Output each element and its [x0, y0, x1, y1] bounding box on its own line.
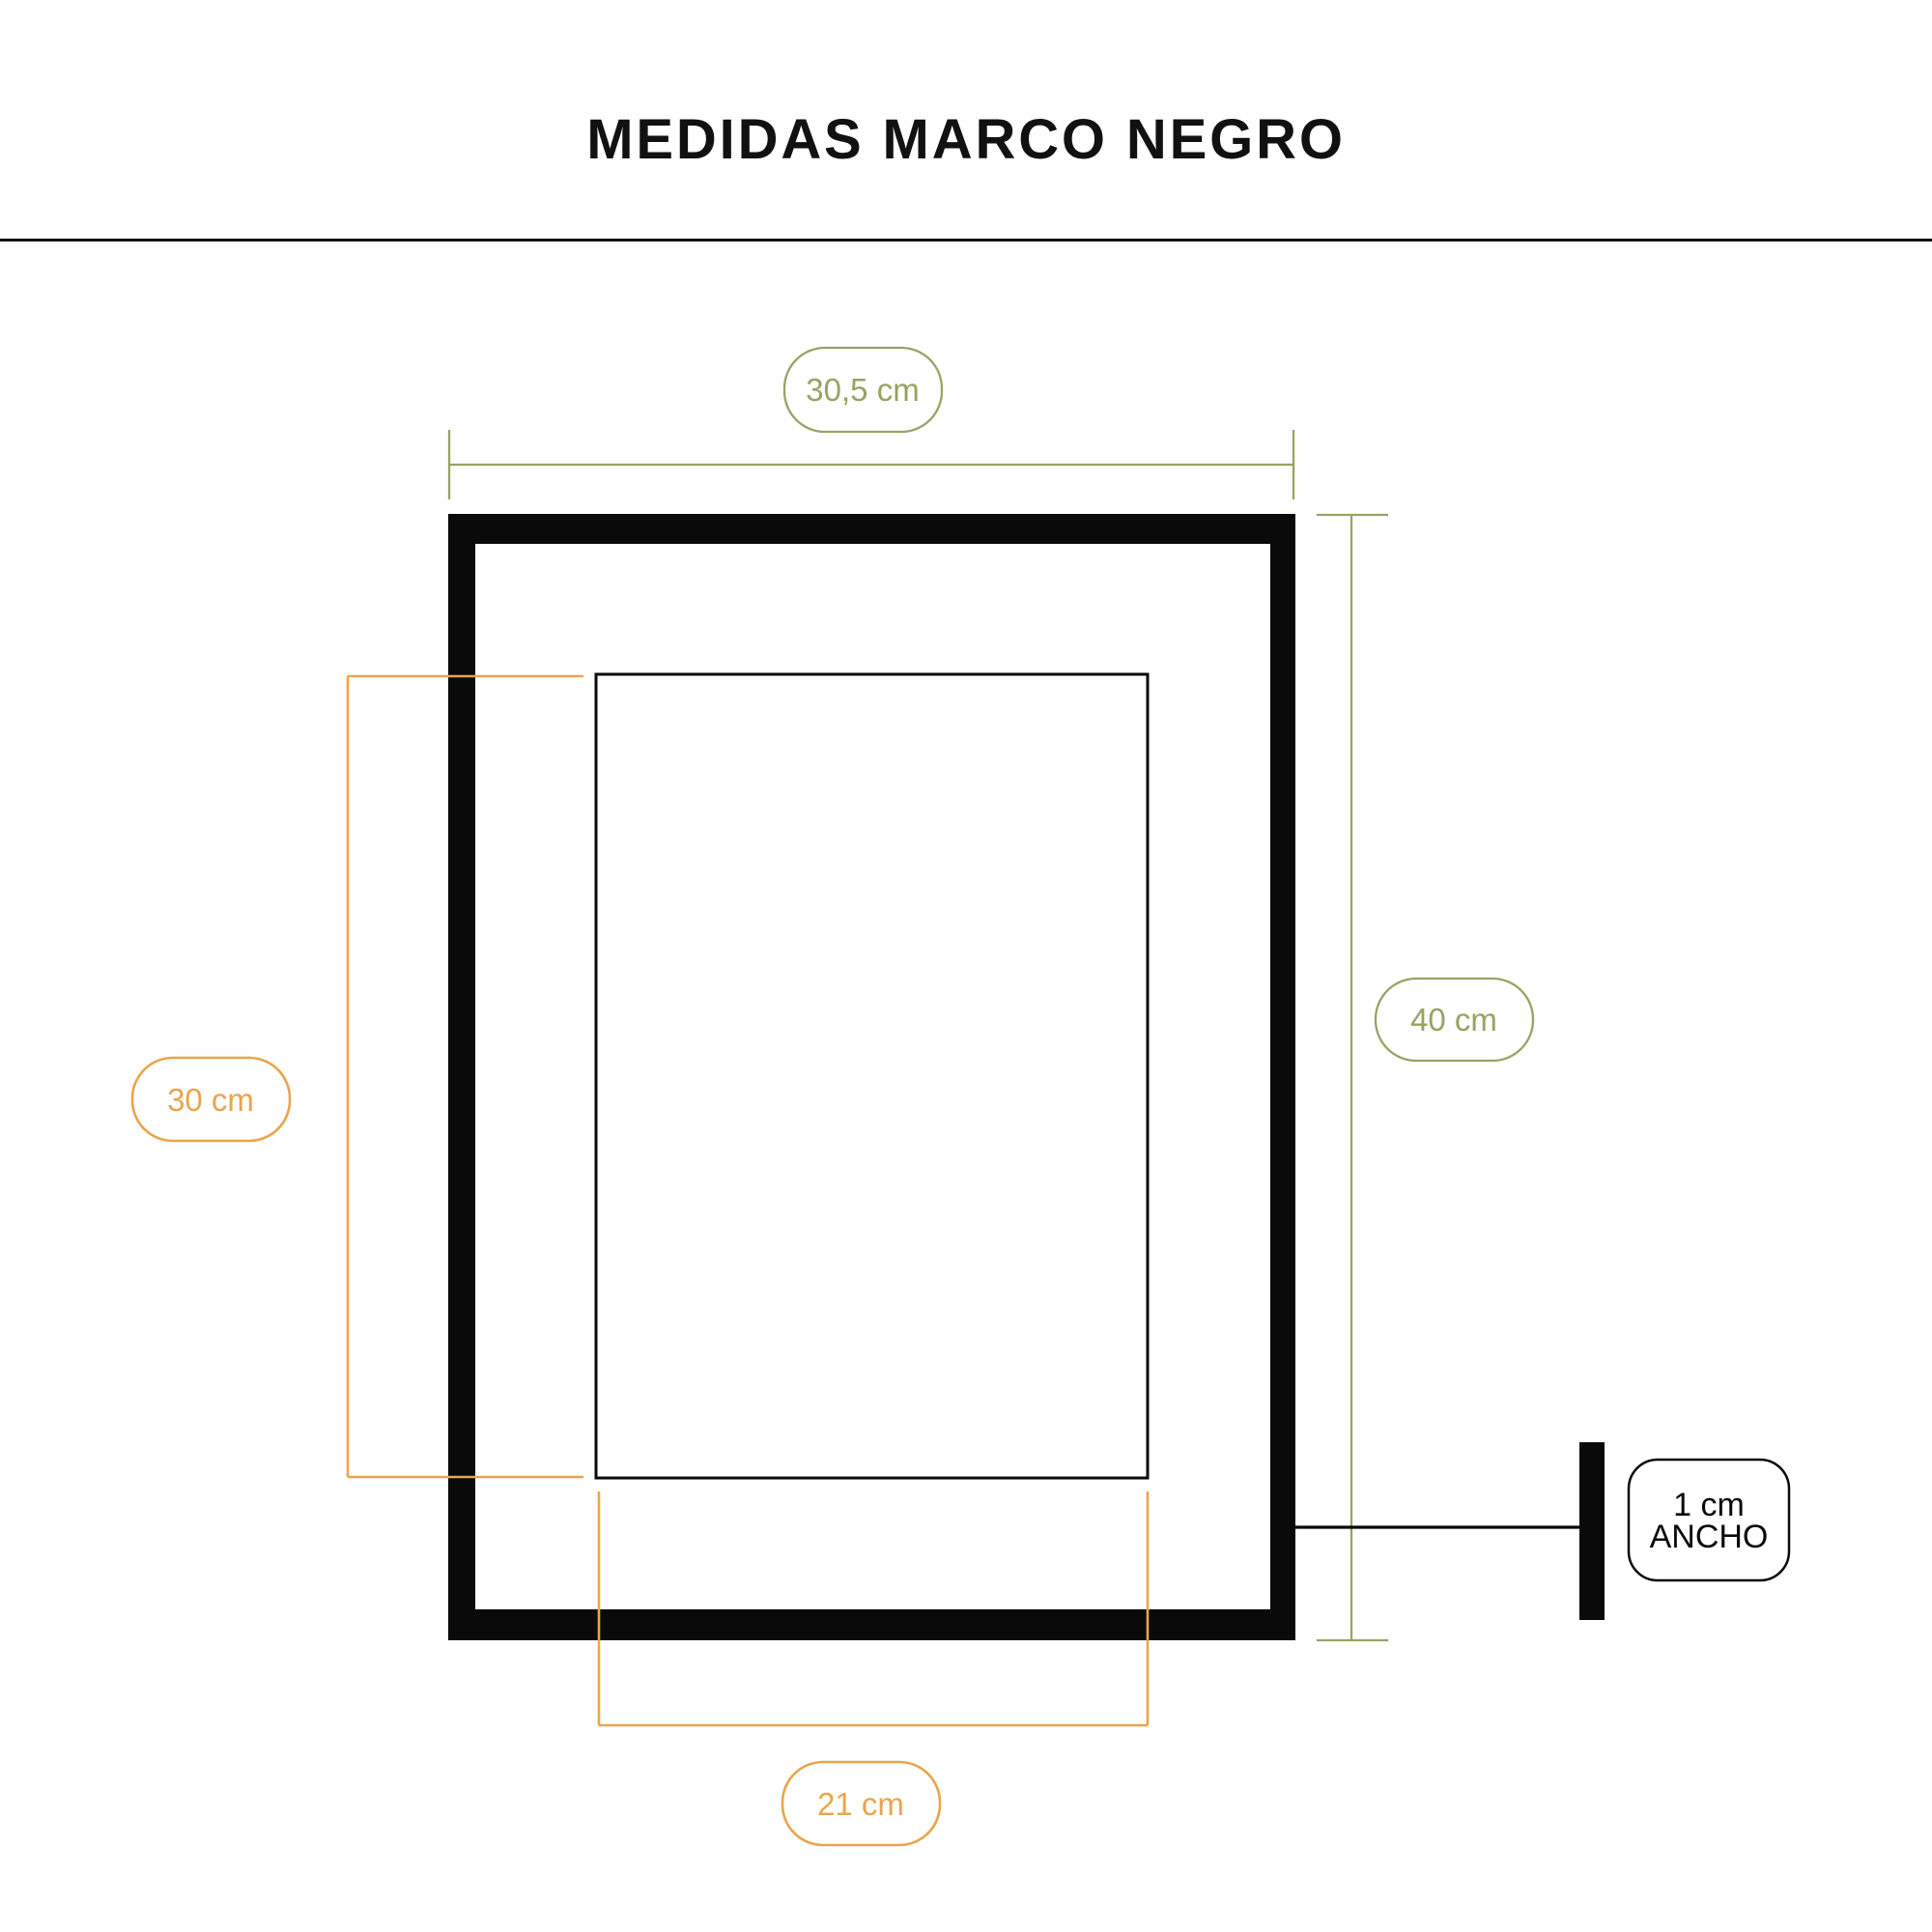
- svg-text:MEDIDAS MARCO NEGRO: MEDIDAS MARCO NEGRO: [586, 108, 1346, 171]
- svg-text:ANCHO: ANCHO: [1650, 1519, 1769, 1555]
- svg-text:21 cm: 21 cm: [817, 1786, 904, 1822]
- svg-text:30 cm: 30 cm: [167, 1082, 254, 1118]
- svg-text:30,5 cm: 30,5 cm: [806, 372, 919, 408]
- svg-text:40 cm: 40 cm: [1410, 1002, 1497, 1037]
